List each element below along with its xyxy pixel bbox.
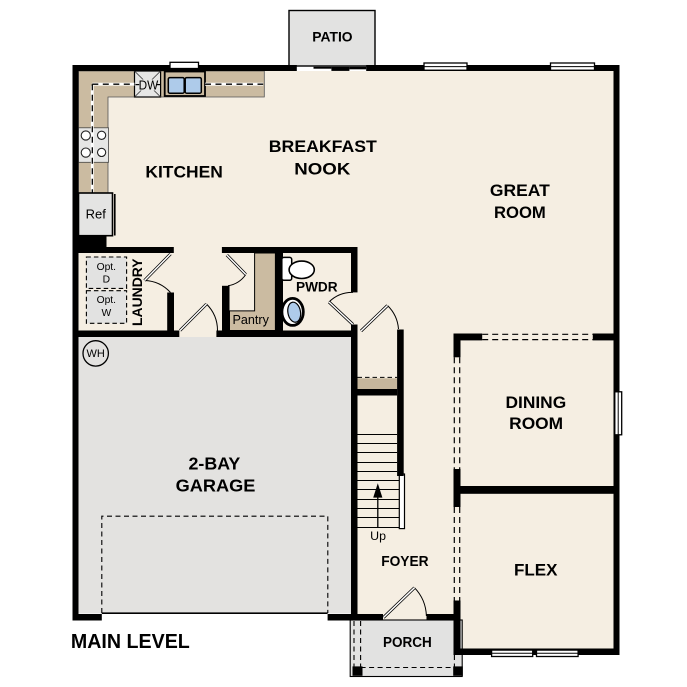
svg-text:Opt.: Opt. xyxy=(97,295,116,306)
svg-text:BREAKFAST: BREAKFAST xyxy=(269,138,377,156)
svg-text:MAIN LEVEL: MAIN LEVEL xyxy=(71,631,190,653)
svg-text:Opt.: Opt. xyxy=(97,262,116,273)
svg-text:DW: DW xyxy=(139,78,159,92)
svg-text:WH: WH xyxy=(87,348,105,360)
svg-text:FLEX: FLEX xyxy=(514,562,558,580)
svg-text:W: W xyxy=(101,308,111,319)
svg-text:2-BAY: 2-BAY xyxy=(189,453,241,473)
svg-text:DINING: DINING xyxy=(506,394,567,412)
svg-text:NOOK: NOOK xyxy=(294,160,350,178)
svg-text:Pantry: Pantry xyxy=(232,313,269,327)
svg-text:PORCH: PORCH xyxy=(383,635,432,651)
svg-text:ROOM: ROOM xyxy=(494,204,546,222)
svg-text:ROOM: ROOM xyxy=(509,415,563,433)
svg-text:PATIO: PATIO xyxy=(312,29,353,44)
svg-text:GREAT: GREAT xyxy=(490,182,550,200)
svg-text:FOYER: FOYER xyxy=(381,554,429,570)
svg-text:Ref: Ref xyxy=(86,207,107,222)
svg-text:Up: Up xyxy=(370,529,386,543)
svg-text:D: D xyxy=(103,275,110,286)
svg-text:KITCHEN: KITCHEN xyxy=(145,164,222,182)
svg-text:GARAGE: GARAGE xyxy=(176,476,256,496)
svg-text:LAUNDRY: LAUNDRY xyxy=(130,258,145,326)
svg-text:PWDR: PWDR xyxy=(296,279,338,295)
